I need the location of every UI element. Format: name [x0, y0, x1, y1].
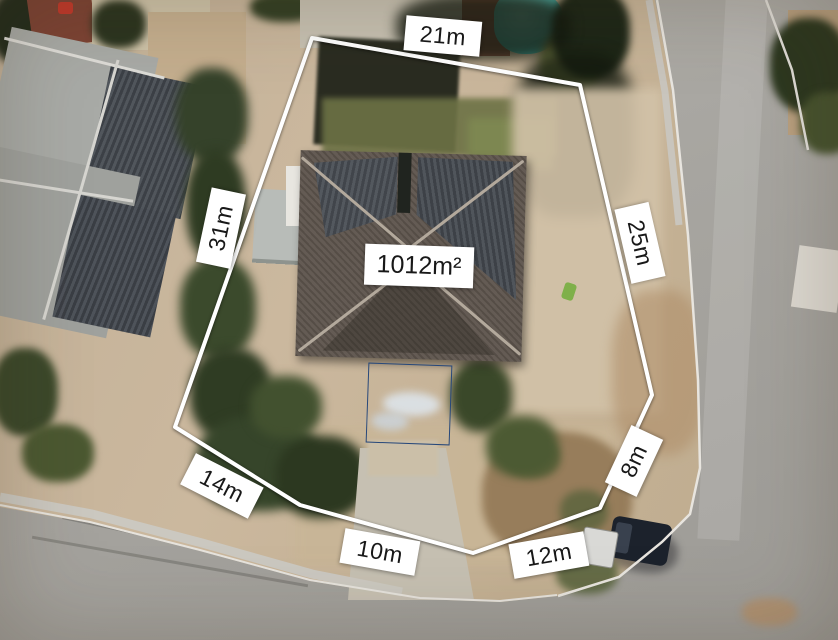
lot-boundary — [175, 38, 652, 553]
curb-line — [766, 0, 808, 150]
area-label: 1012m² — [364, 244, 474, 289]
dimension-label-top: 21m — [403, 15, 482, 57]
aerial-lot-map: 21m 31m 25m 8m 12m 10m 14m 1012m² — [0, 0, 838, 640]
